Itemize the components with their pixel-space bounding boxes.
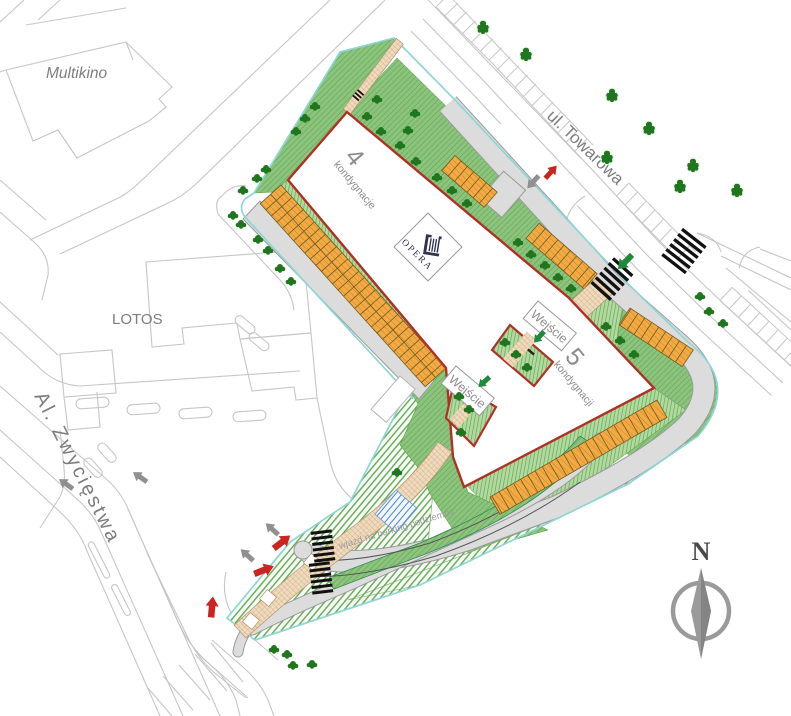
svg-text:N: N — [692, 537, 711, 566]
svg-text:Multikino: Multikino — [46, 65, 108, 82]
svg-text:LOTOS: LOTOS — [112, 311, 163, 328]
